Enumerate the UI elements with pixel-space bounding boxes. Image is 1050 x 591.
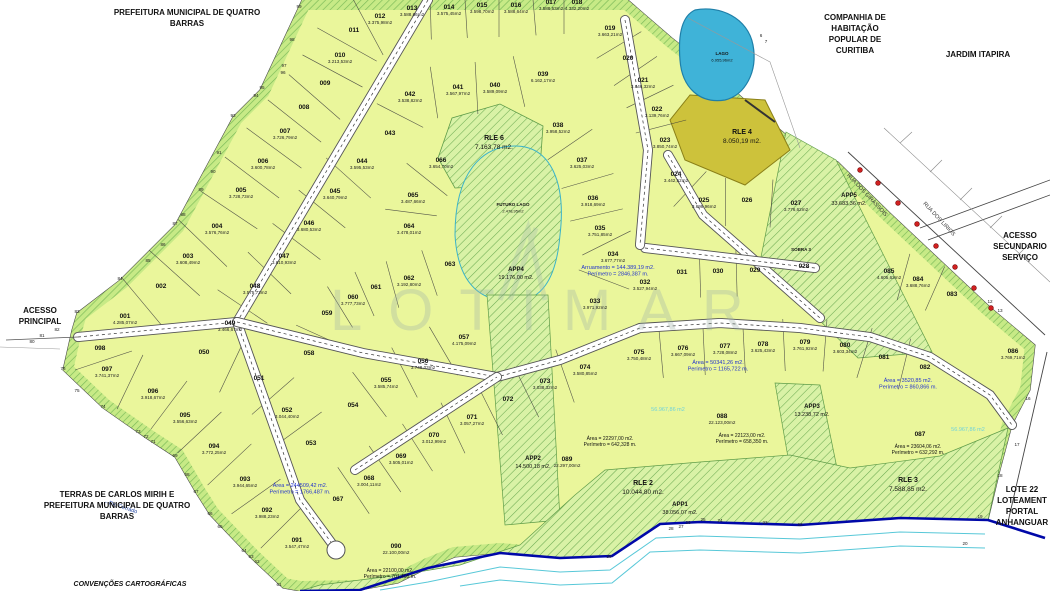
- lot-number: 064: [404, 223, 415, 230]
- lot-number: 008: [299, 104, 310, 111]
- lot-area: 3.487,66m2: [401, 199, 426, 204]
- lot-number: 058: [304, 350, 315, 357]
- boundary-point-number: 64: [241, 548, 247, 553]
- lot-number: 063: [445, 261, 456, 268]
- lot-area: 3.442,52m2: [664, 178, 689, 183]
- lot-area: 3.850,74m2: [653, 144, 678, 149]
- zone-area: 8.050,19 m2.: [723, 138, 761, 145]
- lot-number: 025: [699, 197, 710, 204]
- lot-number: 026: [742, 197, 753, 204]
- map-label-lote22: LOTEAMENT: [997, 496, 1047, 505]
- lot-area: 3.608,49m2: [176, 260, 201, 265]
- boundary-point-number: 98: [289, 37, 295, 42]
- boundary-point-number: 81: [39, 333, 45, 338]
- lot-number: 096: [148, 388, 159, 395]
- red-survey-marker: [896, 201, 901, 206]
- lot-number: 087: [915, 431, 926, 438]
- lot-area: 4.175,09m2: [452, 341, 477, 346]
- lot-number: 003: [183, 253, 194, 260]
- lot-number: 061: [371, 284, 382, 291]
- zone-area: 2.478,95m2: [502, 209, 524, 214]
- lot-number: 032: [640, 279, 651, 286]
- boundary-point-number: 82: [54, 327, 60, 332]
- lot-area: 3.728,73m2: [229, 194, 254, 199]
- lot-area: 3.556,63m2: [173, 419, 198, 424]
- lot-number: 070: [429, 432, 440, 439]
- lot-area: 3.918,67m2: [141, 395, 166, 400]
- map-label-acesso-secundario: SECUNDARIO: [993, 242, 1047, 251]
- lot-area: 3.688,76m2: [906, 283, 931, 288]
- lot-area: 3.505,01m2: [389, 460, 414, 465]
- lot-number: 036: [588, 195, 599, 202]
- lot-number: 038: [553, 122, 564, 129]
- lot-number: 009: [320, 80, 331, 87]
- perimeter-annotation-blue: Perímetro = 1766,487 m.: [270, 490, 331, 496]
- lot-number: 014: [444, 4, 455, 11]
- boundary-point-number: 96: [280, 70, 286, 75]
- red-survey-marker: [876, 181, 881, 186]
- lot-area: 3.044,40m2: [275, 414, 300, 419]
- lot-number: 022: [652, 106, 663, 113]
- lot-number: 010: [335, 52, 346, 59]
- map-label-acesso-secundario: SERVIÇO: [1002, 253, 1038, 262]
- zone-area: 7.588,85 m2.: [889, 486, 927, 493]
- lot-number: 024: [671, 171, 682, 178]
- lot-area: 22.297,00m2: [554, 463, 581, 468]
- cul-de-sac-bulb: [327, 541, 345, 559]
- lot-number: 089: [562, 456, 573, 463]
- zone-name: APP2: [525, 456, 541, 462]
- red-survey-marker: [989, 306, 994, 311]
- zone-name: APP1: [672, 502, 688, 508]
- map-label-terras: PREFEITURA MUNICIPAL DE QUATRO: [44, 501, 190, 510]
- lot-number: 098: [95, 345, 106, 352]
- lot-area: 3.567,97m2: [446, 91, 471, 96]
- boundary-point-number: 94: [253, 93, 259, 98]
- lot-number: 090: [391, 543, 402, 550]
- boundary-point-number: 72: [143, 434, 149, 439]
- lot-area: 3.699,96m2: [692, 204, 717, 209]
- lot-area: 3.478,01m2: [397, 230, 422, 235]
- lot-area: 3.588,86m2: [400, 12, 425, 17]
- lot-number: 042: [405, 91, 416, 98]
- area-annotation-blue: Área = 50341,26 m2.: [692, 359, 744, 366]
- boundary-point-number: 17: [1014, 442, 1020, 447]
- boundary-point-number: 91: [216, 150, 222, 155]
- lot-number: 045: [330, 188, 341, 195]
- zone-area: 14.500,18 m2.: [515, 464, 551, 470]
- area-annotation-blue: Área = 244509,42 m2.: [273, 482, 328, 489]
- watermark-area-text: 56.967,86 m2: [651, 407, 685, 413]
- lot-number: 030: [713, 268, 724, 275]
- boundary-point-number: 87: [172, 221, 178, 226]
- lot-area: 3.750,48m2: [627, 356, 652, 361]
- boundary-point-number: 65: [217, 524, 223, 529]
- zone-name: APP4: [508, 267, 524, 273]
- lot-area: 3.576,76m2: [205, 230, 230, 235]
- area-annotation-blue: Área = 3520,85 m2.: [884, 377, 933, 384]
- lot-area: 3.580,85m2: [573, 371, 598, 376]
- boundary-point-number: 29: [606, 554, 612, 559]
- lot-number: 093: [240, 476, 251, 483]
- lot-number: 078: [758, 341, 769, 348]
- lot-number: 011: [349, 27, 360, 34]
- zone-name: RLE 4: [732, 129, 752, 136]
- boundary-point-number: 68: [184, 472, 190, 477]
- lot-area: 3.769,71m2: [1001, 355, 1026, 360]
- lot-area: 3.726,79m2: [273, 135, 298, 140]
- zone-name: SOBRA 3: [791, 247, 811, 252]
- boundary-point-number: 26: [685, 520, 691, 525]
- perimeter-annotation: Perímetro = 642,328 m.: [584, 442, 637, 448]
- lot-area: 3.375,98m2: [368, 20, 393, 25]
- lot-area: 3.004,11m2: [357, 482, 381, 487]
- lot-number: 086: [1008, 348, 1019, 355]
- lot-area: 3.654,70m2: [429, 164, 454, 169]
- lot-area: 4.605,63m2: [877, 275, 902, 280]
- lot-area: 3.588,64m2: [504, 9, 529, 14]
- lot-area: 3.527,94m2: [633, 286, 658, 291]
- lot-area: 3.777,73m2: [341, 301, 366, 306]
- boundary-point-number: 85: [145, 258, 151, 263]
- lot-area: 3.761,92m2: [793, 346, 818, 351]
- lot-number: 027: [791, 200, 802, 207]
- map-label-prefeitura-top: BARRAS: [170, 19, 205, 28]
- lot-area: 3.958,52m2: [546, 129, 571, 134]
- lot-number: 054: [348, 402, 359, 409]
- map-label-jardim-itapira: JARDIM ITAPIRA: [946, 50, 1011, 59]
- lot-number: 023: [660, 137, 671, 144]
- lot-number: 068: [364, 475, 375, 482]
- lot-number: 015: [477, 2, 488, 9]
- lot-number: 050: [199, 349, 210, 356]
- lot-area: 3.751,85m2: [588, 232, 613, 237]
- boundary-point-number: 7: [765, 39, 768, 44]
- lot-area: 3.625,43m2: [751, 348, 776, 353]
- lot-number: 013: [407, 5, 418, 12]
- boundary-point-number: 25: [700, 517, 706, 522]
- lot-number: 059: [322, 310, 333, 317]
- zone-area: 7.163,78 m2.: [475, 144, 513, 151]
- area-annotation-blue: Arruamento = 144.389,19 m2.: [581, 265, 655, 271]
- lot-area: 3.846,32m2: [631, 84, 656, 89]
- zone-area: 38.056,07 m2.: [662, 510, 698, 516]
- perimeter-annotation: Perímetro = 632,292 m.: [892, 450, 945, 456]
- boundary-point-number: 62: [254, 559, 260, 564]
- lot-number: 060: [348, 294, 359, 301]
- lot-number: 052: [282, 407, 293, 414]
- area-annotation: Área = 22297,00 m2.: [587, 435, 634, 442]
- map-label-terras: BARRAS: [100, 512, 135, 521]
- lot-area: 3.971,92m2: [583, 305, 608, 310]
- neighbor-lot-tick: [960, 188, 972, 200]
- lot-number: 079: [800, 339, 811, 346]
- lot-number: 002: [156, 283, 167, 290]
- red-survey-marker: [915, 222, 920, 227]
- zone-name: APP3: [804, 404, 820, 410]
- lot-area: 3.776,62m2: [784, 207, 809, 212]
- boundary-point-number: 12: [987, 299, 993, 304]
- map-label-companhia: COMPANHIA DE: [824, 13, 886, 22]
- lot-number: 004: [212, 223, 223, 230]
- zone-area: 33.683,36 m2.: [831, 201, 867, 207]
- lot-number: 085: [884, 268, 895, 275]
- lot-number: 033: [590, 298, 601, 305]
- boundary-point-number: 67: [193, 489, 199, 494]
- zone-name: FUTURO LAGO: [497, 202, 530, 207]
- lot-area: 3.466,67m2: [218, 327, 243, 332]
- lot-number: 006: [258, 158, 269, 165]
- lot-number: 043: [385, 130, 396, 137]
- lot-area: 3.748,03m2: [411, 365, 436, 370]
- lot-area: 3.575,73m2: [243, 290, 268, 295]
- lot-number: 001: [120, 313, 131, 320]
- street-name: RUA DOS LIRIOS: [921, 201, 956, 238]
- boundary-point-number: 66: [207, 511, 213, 516]
- perimeter-annotation-blue: Perímetro = 1165,722 m.: [688, 367, 749, 373]
- lot-area: 3.192,80m2: [397, 282, 422, 287]
- lot-number: 082: [920, 364, 931, 371]
- boundary-point-number: 22: [797, 522, 803, 527]
- perimeter-annotation-blue: Perímetro = 2846,387 m.: [588, 272, 649, 278]
- lot-number: 062: [404, 275, 415, 282]
- area-annotation: Área = 22123,00 m2.: [719, 432, 766, 439]
- boundary-point-number: 95: [259, 85, 265, 90]
- boundary-point-number: 89: [198, 187, 204, 192]
- zone-name: LAGO: [716, 51, 729, 56]
- lot-number: 019: [605, 25, 616, 32]
- map-label-acesso-principal: ACESSO: [23, 306, 57, 315]
- boundary-point-number: 61: [276, 582, 282, 587]
- perimeter-annotation: Perímetro = 701,495 m.: [364, 574, 417, 580]
- map-label-companhia: CURITIBA: [836, 46, 874, 55]
- lot-area: 3.741,37m2: [95, 373, 120, 378]
- boundary-point-number: 83: [74, 309, 80, 314]
- map-label-acesso-secundario: ACESSO: [1003, 231, 1037, 240]
- boundary-point-number: 19: [977, 514, 983, 519]
- map-label-companhia: HABITAÇÃO: [831, 24, 878, 33]
- lot-area: 3.625,03m2: [570, 164, 595, 169]
- zone-name: APP5: [841, 193, 857, 199]
- lot-number: 051: [254, 375, 265, 382]
- lot-number: 044: [357, 158, 368, 165]
- boundary-point-number: 75: [74, 388, 80, 393]
- boundary-point-number: 16: [1025, 396, 1031, 401]
- boundary-point-number: 99: [296, 4, 302, 9]
- boundary-point-number: 88: [180, 212, 186, 217]
- lot-number: 094: [209, 443, 220, 450]
- map-label-lote22: PORTAL: [1006, 507, 1038, 516]
- lot-area: 3.012,99m2: [422, 439, 447, 444]
- red-survey-marker: [953, 265, 958, 270]
- lot-number: 046: [304, 220, 315, 227]
- lot-number: 034: [608, 251, 619, 258]
- zone-name: RLE 3: [898, 477, 918, 484]
- boundary-point-number: 84: [117, 276, 123, 281]
- lot-number: 031: [677, 269, 688, 276]
- lot-number: 065: [408, 192, 419, 199]
- lot-area: 3.598,70m2: [470, 9, 495, 14]
- boundary-point-number: 27: [678, 524, 684, 529]
- lot-area: 3.663,21m2: [598, 32, 623, 37]
- map-label-lote22: ANHANGUAR: [996, 518, 1049, 527]
- lot-number: 007: [280, 128, 291, 135]
- map-label-prefeitura-top: PREFEITURA MUNICIPAL DE QUATRO: [114, 8, 260, 17]
- lot-number: 016: [511, 2, 522, 9]
- lot-area: 3.640,79m2: [323, 195, 348, 200]
- boundary-point-number: 73: [135, 429, 141, 434]
- area-annotation: Área = 22100,00 m2.: [367, 567, 414, 574]
- lot-number: 071: [467, 414, 478, 421]
- perimeter-annotation: Perímetro = 658,350 m.: [716, 439, 769, 445]
- lot-number: 091: [292, 537, 303, 544]
- boundary-point-number: 86: [160, 242, 166, 247]
- lot-area: 3.728,08m2: [713, 350, 738, 355]
- lot-number: 012: [375, 13, 386, 20]
- boundary-point-number: 20: [962, 541, 968, 546]
- boundary-point-number: 80: [29, 339, 35, 344]
- lot-number: 041: [453, 84, 464, 91]
- boundary-point-number: 13: [997, 308, 1003, 313]
- lot-number: 056: [418, 358, 429, 365]
- boundary-point-number: 6: [760, 33, 763, 38]
- lot-area: 3.772,25m2: [202, 450, 227, 455]
- map-label-companhia: POPULAR DE: [829, 35, 882, 44]
- map-label-convencoes: CONVENÇÕES CARTOGRÁFICAS: [74, 579, 187, 588]
- red-survey-marker: [858, 168, 863, 173]
- map-label-acesso-principal: PRINCIPAL: [19, 317, 62, 326]
- boundary-point-number: 74: [100, 404, 106, 409]
- lot-number: 066: [436, 157, 447, 164]
- lot-area: 3.213,53m2: [328, 59, 353, 64]
- lot-number: 021: [638, 77, 649, 84]
- lot-number: 005: [236, 187, 247, 194]
- map-label-terras: TERRAS DE CARLOS MIRIH E: [60, 490, 175, 499]
- boundary-point-number: 63: [248, 554, 254, 559]
- lot-number: 037: [577, 157, 588, 164]
- boundary-point-number: 24: [717, 518, 723, 523]
- red-survey-marker: [972, 286, 977, 291]
- lot-number: 076: [678, 345, 689, 352]
- lot-area: 22.100,00m2: [383, 550, 410, 555]
- watermark-text: LOTIMAR: [330, 278, 770, 343]
- lot-number: 039: [538, 71, 549, 78]
- lot-number: 057: [459, 334, 470, 341]
- lot-area: 3.589,09m2: [483, 89, 508, 94]
- neighbor-lot-tick: [930, 160, 942, 172]
- perimeter-annotation-blue: Perímetro = 860,866 m.: [879, 385, 937, 391]
- lot-number: 035: [595, 225, 606, 232]
- boundary-point-number: 97: [281, 63, 287, 68]
- lot-area: 3.585,74m2: [374, 384, 399, 389]
- boundary-point-number: 71: [150, 439, 156, 444]
- lot-number: 049: [225, 320, 236, 327]
- boundary-point-number: 93: [230, 113, 236, 118]
- lot-number: 020: [623, 55, 634, 62]
- lot-area: 3.944,65m2: [233, 483, 258, 488]
- zone-area: 6.955,96m2: [711, 58, 733, 63]
- lot-number: 067: [333, 496, 344, 503]
- zone-area: 10.044,80 m2.: [622, 489, 664, 496]
- lot-area: 4.285,07m2: [113, 320, 138, 325]
- zone-name: RLE 6: [484, 135, 504, 142]
- lot-number: 040: [490, 82, 501, 89]
- map-label-lote22: LOTE 22: [1006, 485, 1039, 494]
- lot-area: 3.667,09m2: [671, 352, 696, 357]
- lot-number: 083: [947, 291, 958, 298]
- lot-number: 077: [720, 343, 731, 350]
- lot-area: 3.603,34m2: [833, 349, 858, 354]
- lot-number: 075: [634, 349, 645, 356]
- lot-area: 3.680,53m2: [297, 227, 322, 232]
- lot-area: 22.123,00m2: [709, 420, 736, 425]
- boundary-point-number: 18: [997, 473, 1003, 478]
- lot-area: 3.988,23m2: [255, 514, 280, 519]
- zone-name: RLE 2: [633, 480, 653, 487]
- lot-area: 3.139,76m2: [645, 113, 670, 118]
- boundary-point-number: 76: [60, 366, 66, 371]
- zone-area: 13.238,72 m2.: [794, 412, 830, 418]
- lot-area: 3.677,77m2: [601, 258, 626, 263]
- red-survey-marker: [934, 244, 939, 249]
- lot-number: 053: [306, 440, 317, 447]
- lot-number: 088: [717, 413, 728, 420]
- lot-number: 073: [540, 378, 551, 385]
- lot-area: 4.332,20m2: [565, 6, 590, 11]
- lot-area: 3.547,47m2: [285, 544, 310, 549]
- watermark-area-text: 56.967,86 m2: [951, 427, 985, 433]
- lot-number: 081: [879, 354, 890, 361]
- lot-area: 3.610,93m2: [272, 260, 297, 265]
- lot-number: 084: [913, 276, 924, 283]
- area-annotation: Área = 23604,06 m2.: [895, 443, 942, 450]
- lot-number: 097: [102, 366, 113, 373]
- neighbor-lot-tick: [900, 132, 912, 143]
- lot-area: 3.038,32m2: [533, 385, 558, 390]
- access-road-line-2: [0, 347, 60, 349]
- lot-area: 6.162,17m2: [531, 78, 556, 83]
- lot-number: 092: [262, 507, 273, 514]
- lot-area: 3.057,27m2: [460, 421, 485, 426]
- boundary-point-number: 90: [210, 169, 216, 174]
- lot-number: 048: [250, 283, 261, 290]
- lot-area: 3.600,78m2: [251, 165, 276, 170]
- cadastral-subdivision-map: LOTIMAR 0014.285,07m20020033.608,49m2004…: [0, 0, 1050, 591]
- lot-area: 3.575,45m2: [437, 11, 462, 16]
- lot-number: 047: [279, 253, 290, 260]
- boundary-point-number: 69: [172, 453, 178, 458]
- lot-number: 095: [180, 412, 191, 419]
- lot-area: 3.918,69m2: [581, 202, 606, 207]
- lot-number: 055: [381, 377, 392, 384]
- lot-number: 072: [503, 396, 514, 403]
- zone-area: 19.176,00 m2.: [498, 275, 534, 281]
- lot-number: 080: [840, 342, 851, 349]
- lot-number: 069: [396, 453, 407, 460]
- lot-number: 029: [750, 267, 761, 274]
- lot-number: 074: [580, 364, 591, 371]
- lot-area: 3.538,82m2: [398, 98, 423, 103]
- boundary-point-number: 23: [762, 520, 768, 525]
- neighbor-lot-tick: [990, 216, 1002, 228]
- lot-area: 3.595,53m2: [350, 165, 375, 170]
- lot-number: 028: [799, 263, 810, 270]
- map-viewport: LOTIMAR 0014.285,07m20020033.608,49m2004…: [0, 0, 1050, 591]
- boundary-point-number: 28: [668, 526, 674, 531]
- lot-area: 3.588,53m2: [539, 6, 564, 11]
